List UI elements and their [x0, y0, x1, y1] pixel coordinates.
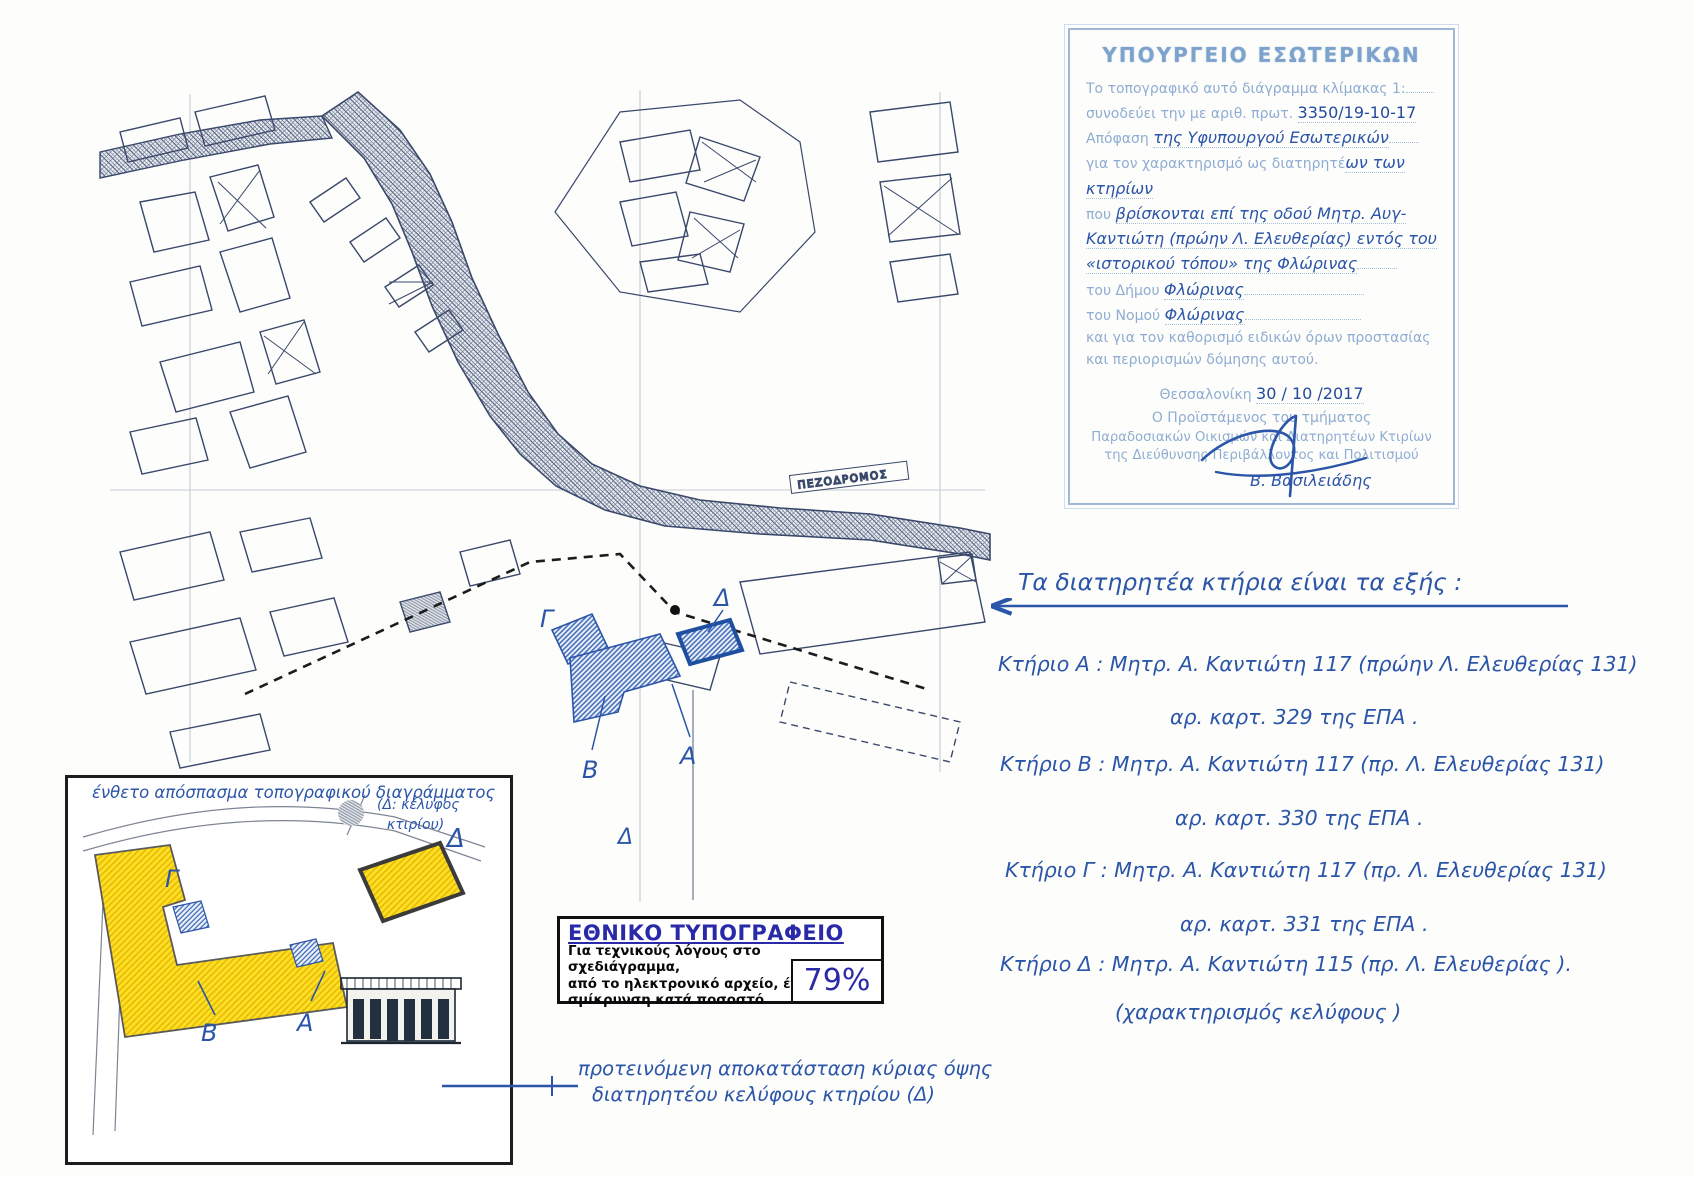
stamp-line: και για τον καθορισμό ειδικών όρων προστ…	[1086, 327, 1437, 349]
building-delta-card: (χαρακτηρισμός κελύφους )	[1115, 1000, 1401, 1024]
printing-office-title: ΕΘΝΙΚΟ ΤΥΠΟΓΡΑΦΕΙΟ	[568, 922, 873, 944]
restoration-leader-line	[440, 1070, 590, 1100]
inset-label-beta: Β	[201, 1019, 217, 1047]
map-label-beta: Β	[582, 756, 598, 784]
stamp-date: 30 / 10 /2017	[1256, 384, 1363, 404]
stamp-line: που βρίσκονται επί της οδού Μητρ. Αυγ-	[1086, 201, 1437, 226]
inset-label-gamma: Γ	[165, 865, 180, 893]
protocol-number: 3350/19-10-17	[1298, 103, 1417, 123]
building-gamma-entry: Κτήριο Γ : Μητρ. Α. Καντιώτη 117 (πρ. Λ.…	[1005, 858, 1607, 882]
stamp-line: Το τοπογραφικό αυτό διάγραμμα κλίμακας 1…	[1086, 78, 1437, 100]
inset-map: (Δ: κέλυφος κτιρίου) Δ Γ Β Α	[65, 775, 513, 1165]
building-a-entry: Κτήριο Α : Μητρ. Α. Καντιώτη 117 (πρώην …	[998, 652, 1638, 676]
inset-label-alpha: Α	[295, 1009, 313, 1037]
stamp-line: και περιορισμών δόμησης αυτού.	[1086, 349, 1437, 371]
map-label-delta-secondary: Δ	[616, 825, 633, 850]
signature-name: Β. Βασιλειάδης	[1250, 468, 1372, 493]
stamp-line: «ιστορικού τόπου» της Φλώρινας	[1086, 251, 1437, 276]
scanned-document-page: ΠΕΖΟΔΡΟΜΟΣ Γ Β	[0, 0, 1694, 1177]
stamp-date-line: Θεσσαλονίκη 30 / 10 /2017	[1086, 381, 1437, 406]
buildings-east	[870, 102, 960, 302]
buildings-southwest	[120, 518, 520, 768]
ministry-stamp: ΥΠΟΥΡΓΕΙΟ ΕΣΩΤΕΡΙΚΩΝ Το τοπογραφικό αυτό…	[1068, 28, 1455, 505]
building-b-entry: Κτήριο Β : Μητρ. Α. Καντιώτη 117 (πρ. Λ.…	[1000, 752, 1605, 776]
restoration-note: προτεινόμενη αποκατάσταση κύριας όψης δι…	[578, 1056, 992, 1107]
buildings-midtop	[555, 100, 815, 312]
stamp-line: του Δήμου Φλώρινας	[1086, 277, 1437, 302]
building-b-card: αρ. καρτ. 330 της ΕΠΑ .	[1175, 806, 1424, 830]
stamp-title: ΥΠΟΥΡΓΕΙΟ ΕΣΩΤΕΡΙΚΩΝ	[1086, 40, 1437, 72]
survey-point-dot	[670, 605, 680, 615]
stamp-line: συνοδεύει την με αριθ. πρωτ. 3350/19-10-…	[1086, 100, 1437, 125]
heading-underline-arrow	[988, 598, 1573, 614]
building-delta-entry: Κτήριο Δ : Μητρ. Α. Καντιώτη 115 (πρ. Λ.…	[1000, 952, 1572, 976]
stamp-line: Καντιώτη (πρώην Λ. Ελευθερίας) εντός του	[1086, 226, 1437, 251]
stamp-line: Απόφαση της Υφυπουργού Εσωτερικών	[1086, 125, 1437, 150]
building-gamma-card: αρ. καρτ. 331 της ΕΠΑ .	[1180, 912, 1429, 936]
stamp-line: του Νομού Φλώρινας	[1086, 302, 1437, 327]
preserved-buildings-group: Γ Β Α Δ Δ	[540, 584, 742, 850]
map-label-delta: Δ	[712, 584, 730, 612]
inset-delta-note-2: κτιρίου)	[387, 817, 444, 833]
inset-tree-circle	[338, 800, 364, 826]
restoration-note-line2: διατηρητέου κελύφους κτηρίου (Δ)	[578, 1082, 992, 1108]
map-label-alpha: Α	[678, 742, 696, 770]
reduction-percentage: 79%	[791, 959, 881, 1001]
inset-label-delta: Δ	[445, 824, 465, 854]
map-label-gamma: Γ	[540, 605, 555, 633]
national-printing-office-box: ΕΘΝΙΚΟ ΤΥΠΟΓΡΑΦΕΙΟ Για τεχνικούς λόγους …	[557, 916, 884, 1004]
preserved-buildings-heading: Τα διατηρητέα κτήρια είναι τα εξής :	[1018, 568, 1462, 596]
restoration-note-line1: προτεινόμενη αποκατάσταση κύριας όψης	[578, 1056, 992, 1082]
building-a-card: αρ. καρτ. 329 της ΕΠΑ .	[1170, 705, 1419, 729]
stamp-line: για τον χαρακτηρισμό ως διατηρητέων των …	[1086, 150, 1437, 201]
building-delta-outlined	[678, 620, 742, 664]
inset-caption: ένθετο απόσπασμα τοπογραφικού διαγράμματ…	[92, 783, 495, 802]
